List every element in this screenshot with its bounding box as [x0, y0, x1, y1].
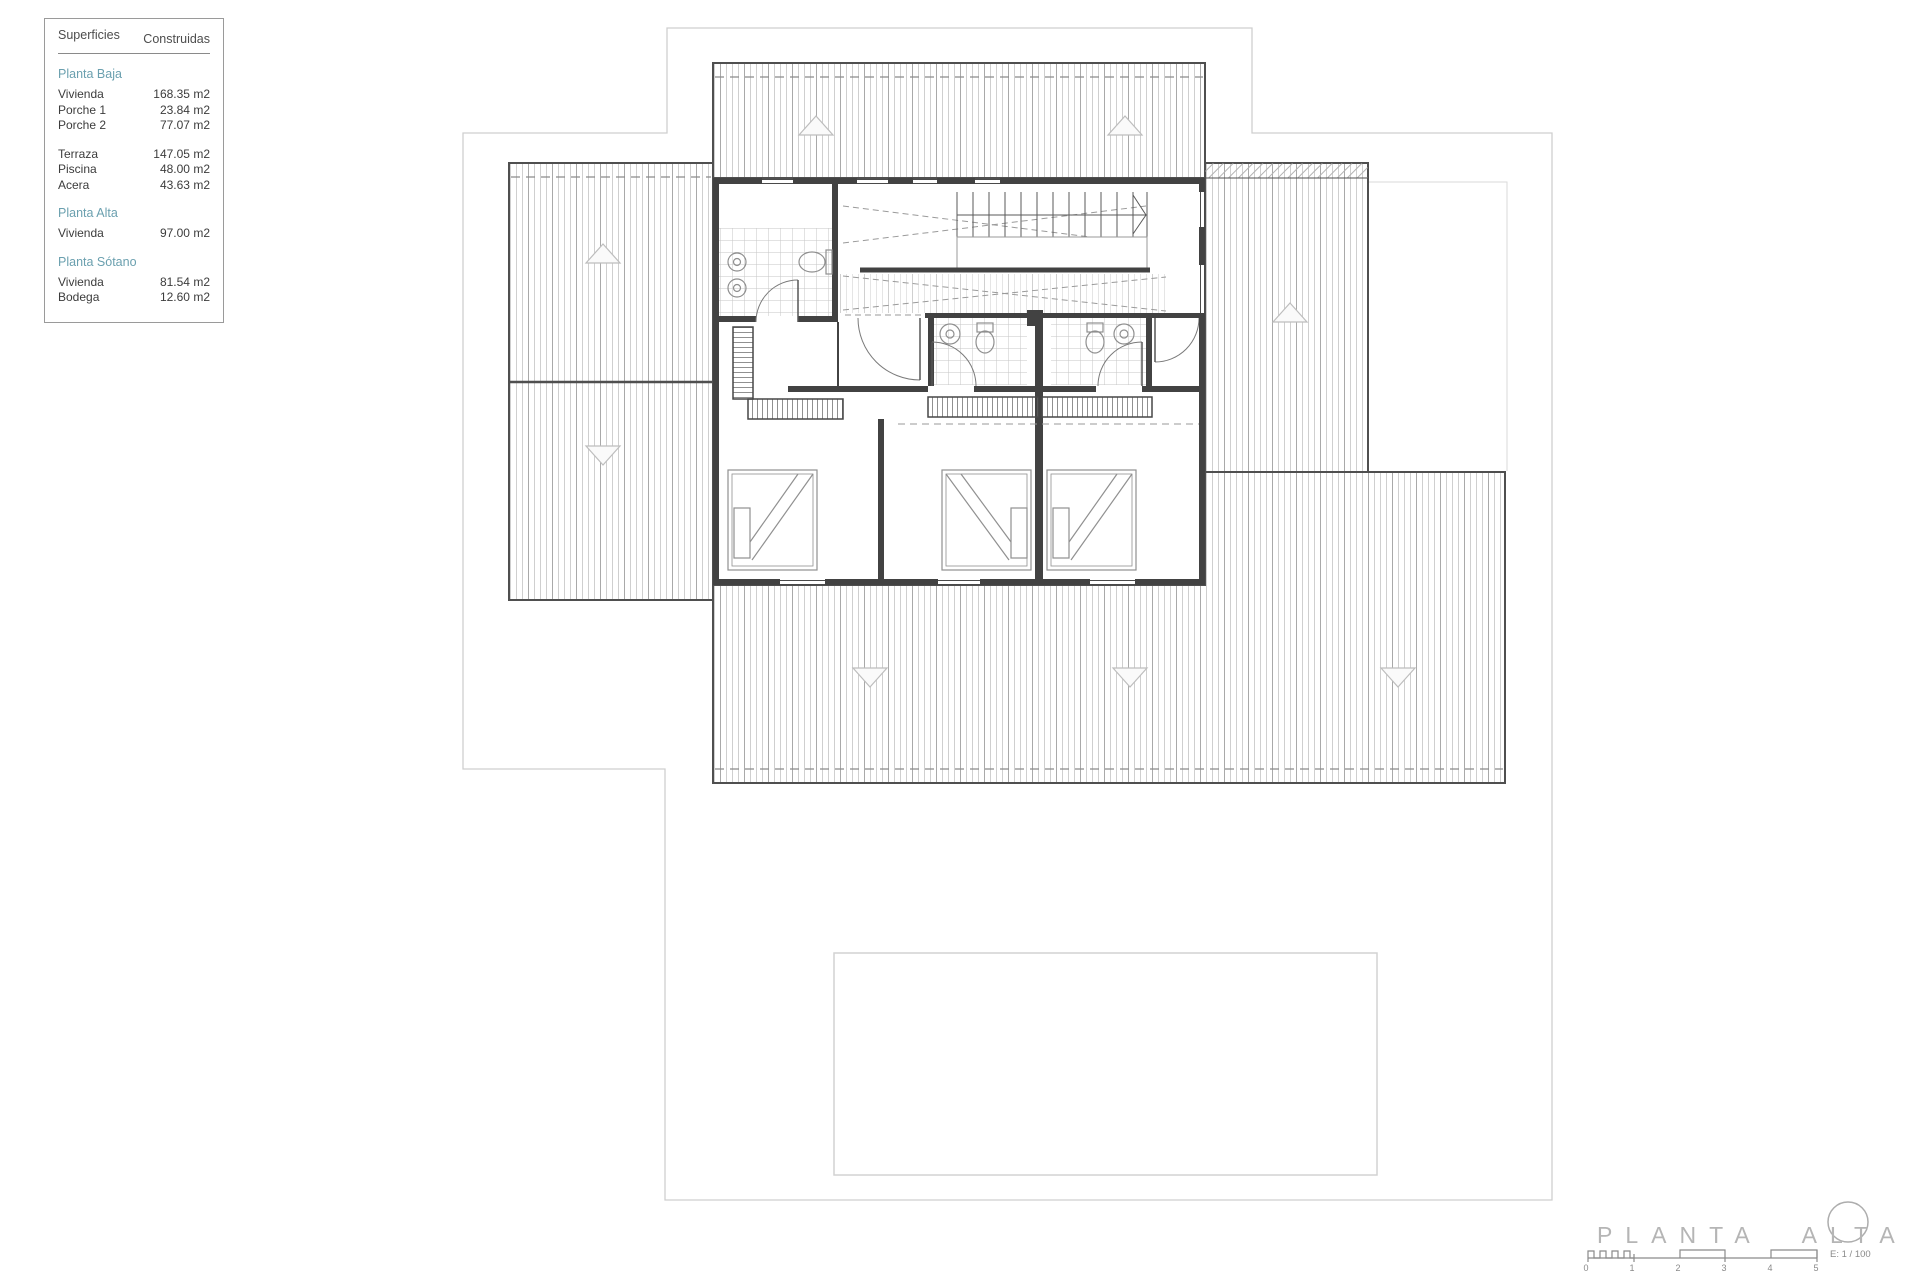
- floor-plan-page: Superficies Construidas Planta BajaVivie…: [0, 0, 1920, 1280]
- roof-top: [713, 63, 1205, 178]
- legend-row: Terraza147.05 m2: [58, 147, 210, 163]
- scale-tick-number: 2: [1673, 1263, 1683, 1273]
- legend-row-value: 168.35 m2: [153, 87, 210, 103]
- legend-title: Superficies Construidas: [58, 28, 210, 46]
- pool-outline: [834, 953, 1377, 1175]
- wall: [925, 313, 1199, 318]
- legend-section: Terraza147.05 m2Piscina48.00 m2Acera43.6…: [58, 147, 210, 194]
- scale-tick-number: 1: [1627, 1263, 1637, 1273]
- legend-row-value: 81.54 m2: [160, 275, 210, 291]
- legend-section-header: Planta Sótano: [58, 255, 210, 269]
- legend-row: Bodega12.60 m2: [58, 290, 210, 306]
- roof-left: [509, 163, 713, 600]
- legend-section-header: Planta Alta: [58, 206, 210, 220]
- legend-row: Vivienda97.00 m2: [58, 226, 210, 242]
- legend-row-label: Acera: [58, 178, 89, 194]
- legend-row: Vivienda81.54 m2: [58, 275, 210, 291]
- terrace-line: [1368, 182, 1507, 471]
- legend-row-label: Porche 1: [58, 103, 106, 119]
- legend-row-label: Bodega: [58, 290, 99, 306]
- legend-row-value: 23.84 m2: [160, 103, 210, 119]
- bedroom-divider-wall: [878, 419, 884, 579]
- scale-tick-number: 0: [1581, 1263, 1591, 1273]
- legend-col-construidas: Construidas: [143, 32, 210, 46]
- legend-row-value: 77.07 m2: [160, 118, 210, 134]
- legend-row: Porche 123.84 m2: [58, 103, 210, 119]
- plan-title: PLANTA ALTA: [1597, 1222, 1908, 1249]
- legend-row: Acera43.63 m2: [58, 178, 210, 194]
- legend-sections: Planta BajaVivienda168.35 m2Porche 123.8…: [58, 67, 210, 306]
- roof-right: [1205, 163, 1368, 472]
- legend-row-value: 12.60 m2: [160, 290, 210, 306]
- legend-row-label: Vivienda: [58, 87, 104, 103]
- scale-label: E: 1 / 100: [1830, 1249, 1871, 1260]
- scale-tick-number: 4: [1765, 1263, 1775, 1273]
- scale-tick-number: 5: [1811, 1263, 1821, 1273]
- legend-section: Planta BajaVivienda168.35 m2Porche 123.8…: [58, 67, 210, 134]
- legend-divider: [58, 53, 210, 54]
- legend-row-value: 48.00 m2: [160, 162, 210, 178]
- legend-row-value: 97.00 m2: [160, 226, 210, 242]
- legend-row: Vivienda168.35 m2: [58, 87, 210, 103]
- scale-bar: [1588, 1250, 1817, 1262]
- legend-row-label: Piscina: [58, 162, 97, 178]
- scale-tick-number: 3: [1719, 1263, 1729, 1273]
- legend-row-label: Vivienda: [58, 226, 104, 242]
- legend-row-value: 147.05 m2: [153, 147, 210, 163]
- center-wall: [1035, 313, 1043, 585]
- scale-bar-ticks: 012345: [1581, 1263, 1821, 1273]
- legend-section: Planta AltaVivienda97.00 m2: [58, 206, 210, 242]
- floor-plan-drawing: [0, 0, 1920, 1280]
- surfaces-legend: Superficies Construidas Planta BajaVivie…: [44, 18, 224, 323]
- legend-row: Piscina48.00 m2: [58, 162, 210, 178]
- legend-row: Porche 277.07 m2: [58, 118, 210, 134]
- legend-row-label: Terraza: [58, 147, 98, 163]
- legend-row-label: Porche 2: [58, 118, 106, 134]
- legend-col-superficies: Superficies: [58, 28, 120, 46]
- legend-row-value: 43.63 m2: [160, 178, 210, 194]
- legend-section: Planta SótanoVivienda81.54 m2Bodega12.60…: [58, 255, 210, 306]
- ensuite-bathroom-right: [1051, 318, 1152, 386]
- legend-section-header: Planta Baja: [58, 67, 210, 81]
- legend-row-label: Vivienda: [58, 275, 104, 291]
- ensuite-bathroom-left: [928, 318, 1027, 386]
